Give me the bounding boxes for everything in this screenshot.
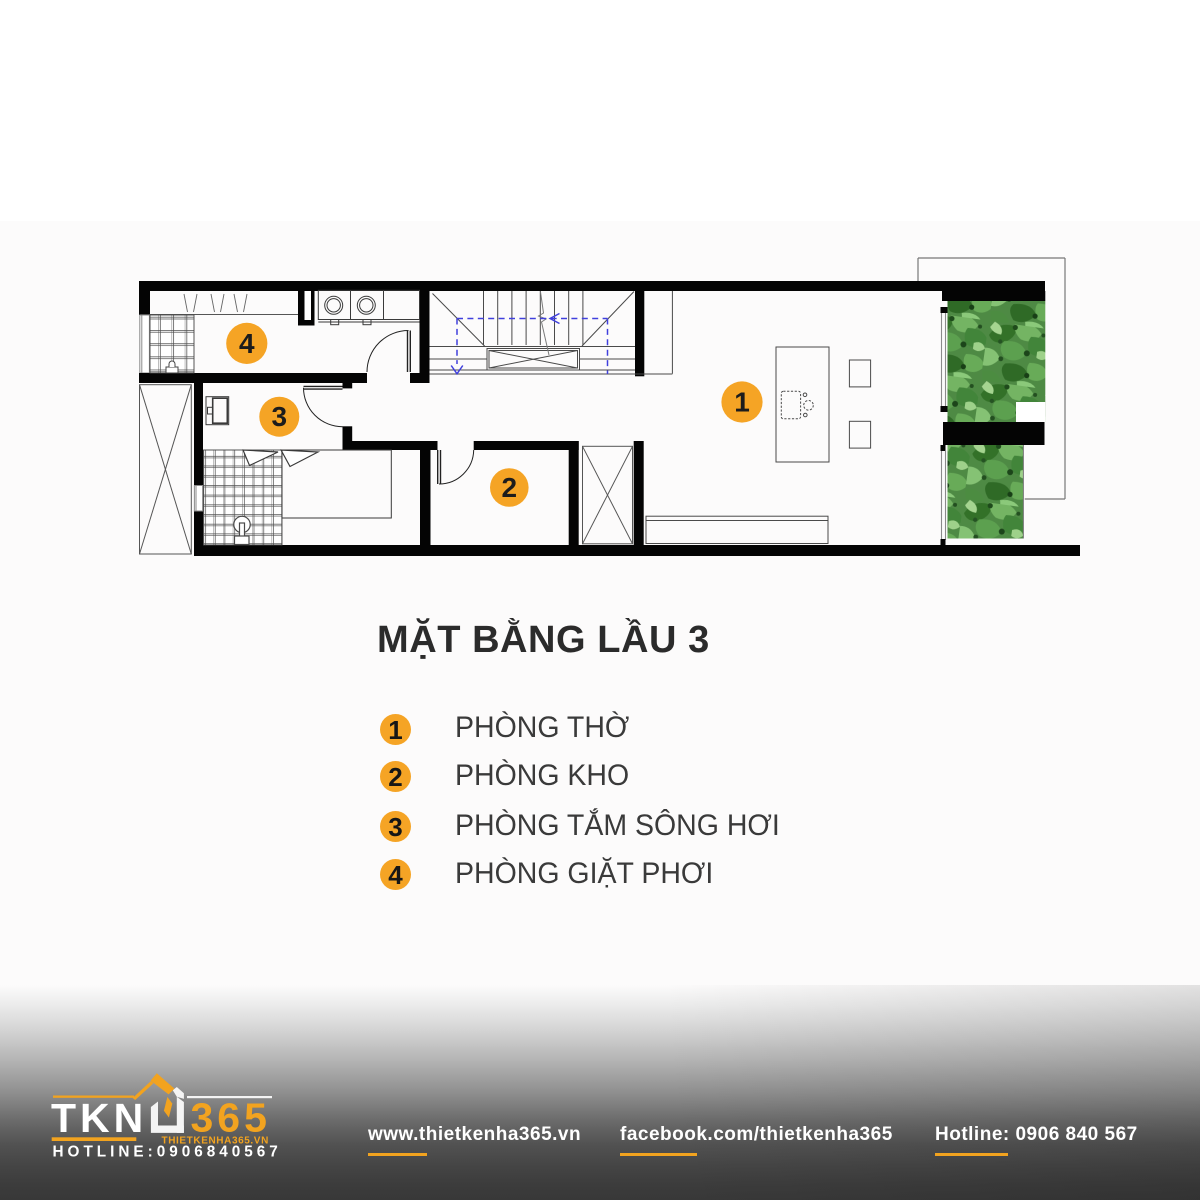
svg-text:4: 4 (239, 328, 255, 359)
svg-text:1: 1 (734, 387, 750, 418)
svg-text:2: 2 (502, 472, 518, 503)
svg-text:3: 3 (272, 401, 288, 432)
svg-text:365: 365 (191, 1095, 271, 1141)
svg-text:TKN: TKN (51, 1095, 147, 1141)
svg-text:HOTLINE:0906840567: HOTLINE:0906840567 (53, 1144, 282, 1161)
